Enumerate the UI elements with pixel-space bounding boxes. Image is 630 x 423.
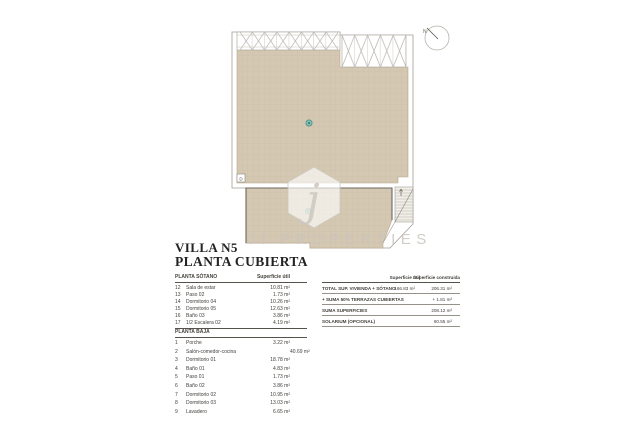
- table-row: 16 Baño 03 3.86 m²: [175, 314, 307, 319]
- row-number: 2: [175, 350, 186, 355]
- row-number: 14: [175, 300, 186, 305]
- table-row: 4 Baño 01 4.83 m²: [175, 367, 307, 372]
- summary-label: SOLARIUM (OPCIONAL): [322, 319, 375, 324]
- table-row: 13 Paso 02 1.73 m²: [175, 293, 307, 298]
- room-name: Dormitorio 04: [186, 300, 250, 305]
- row-number: 7: [175, 393, 186, 398]
- room-area-util: 4.83 m²: [250, 367, 290, 372]
- table-row: 7 Dormitorio 02 10.95 m²: [175, 393, 307, 398]
- table-row: 12 Sala de estar 10.81 m²: [175, 286, 307, 291]
- table-row: 15 Dormitorio 05 12.63 m²: [175, 307, 307, 312]
- table-row: 6 Baño 02 3.86 m²: [175, 384, 307, 389]
- detail-marker: D: [237, 174, 245, 182]
- surface-summary-table: Superficie útil Superficie construida TO…: [322, 272, 460, 327]
- room-name: Paso 02: [186, 293, 250, 298]
- main-terrace: [237, 50, 408, 183]
- summary-rows: TOTAL SUP. VIVIENDA + SÓTANO 166.83 m² 2…: [322, 283, 460, 327]
- row-number: 13: [175, 293, 186, 298]
- row-number: 16: [175, 314, 186, 319]
- compass-north-label: N: [423, 29, 427, 35]
- table-row: 14 Dormitorio 04 10.26 m²: [175, 300, 307, 305]
- summary-label: SUMA SUPERFICIES: [322, 308, 367, 313]
- room-name: Lavadero: [186, 410, 250, 415]
- room-area-util: 18.78 m²: [250, 358, 290, 363]
- room-name: Baño 01: [186, 367, 250, 372]
- row-number: 15: [175, 307, 186, 312]
- room-name: Salón-comedor-cocina: [186, 350, 250, 355]
- baja-rows: 1 Porche 3.22 m² 2 Salón-comedor-cocina …: [175, 341, 307, 415]
- summary-row: SUMA SUPERFICIES 208.12 m²: [322, 305, 460, 316]
- room-name: Dormitorio 05: [186, 307, 250, 312]
- summary-value-construida: 60.55 m²: [434, 319, 452, 324]
- plan-sheet-page: D j JI PROPERTIES N VILLA N5 PLANTA CUBI…: [0, 0, 630, 423]
- page-title: VILLA N5: [175, 241, 308, 254]
- room-area-util: 3.86 m²: [250, 384, 290, 389]
- floor-plan-drawing: D j JI PROPERTIES N: [0, 0, 630, 262]
- summary-value-util: 166.83 m²: [394, 286, 415, 291]
- row-number: 1: [175, 341, 186, 346]
- summary-header-construida: Superficie construida: [413, 275, 460, 280]
- summary-label: + SUMA 50% TERRAZAS CUBIERTAS: [322, 297, 404, 302]
- row-number: 9: [175, 410, 186, 415]
- summary-header-row: Superficie útil Superficie construida: [322, 272, 460, 283]
- summary-value-construida: + 1.81 m²: [432, 297, 452, 302]
- room-name: Baño 02: [186, 384, 250, 389]
- room-area-util: 13.03 m²: [250, 401, 290, 406]
- row-number: 3: [175, 358, 186, 363]
- room-area-util: 10.81 m²: [250, 286, 290, 291]
- summary-row: + SUMA 50% TERRAZAS CUBIERTAS + 1.81 m²: [322, 294, 460, 305]
- table-row: 1 Porche 3.22 m²: [175, 341, 307, 346]
- room-name: Porche: [186, 341, 250, 346]
- summary-row: TOTAL SUP. VIVIENDA + SÓTANO 166.83 m² 2…: [322, 283, 460, 294]
- room-name: Dormitorio 02: [186, 393, 250, 398]
- room-area-util: 12.63 m²: [250, 307, 290, 312]
- room-area-util: 6.65 m²: [250, 410, 290, 415]
- table-row: 2 Salón-comedor-cocina 40.69 m²: [175, 350, 307, 355]
- sotano-header-right: Superficie útil: [257, 275, 290, 280]
- row-number: 12: [175, 286, 186, 291]
- sotano-section-header: PLANTA SÓTANO Superficie útil: [175, 275, 307, 283]
- row-number: 5: [175, 375, 186, 380]
- table-row: 9 Lavadero 6.65 m²: [175, 410, 307, 415]
- row-number: 17: [175, 321, 186, 326]
- title-block: VILLA N5 PLANTA CUBIERTA: [175, 241, 308, 269]
- baja-section-header: PLANTA BAJA: [175, 328, 307, 338]
- room-name: Dormitorio 01: [186, 358, 250, 363]
- table-row: 5 Paso 01 1.73 m²: [175, 375, 307, 380]
- room-name: Sala de estar: [186, 286, 250, 291]
- room-area-util: 3.22 m²: [250, 341, 290, 346]
- table-row: 17 1/2 Escalera 02 4.19 m²: [175, 321, 307, 326]
- page-subtitle: PLANTA CUBIERTA: [175, 255, 308, 269]
- row-number: 4: [175, 367, 186, 372]
- summary-value-construida: 208.12 m²: [431, 308, 452, 313]
- room-name: Dormitorio 03: [186, 401, 250, 406]
- pergola-strip: [237, 32, 340, 50]
- room-area-util: 4.19 m²: [250, 321, 290, 326]
- summary-row: SOLARIUM (OPCIONAL) 60.55 m²: [322, 316, 460, 327]
- table-row: 3 Dormitorio 01 18.78 m²: [175, 358, 307, 363]
- summary-label: TOTAL SUP. VIVIENDA + SÓTANO: [322, 286, 396, 291]
- row-number: 8: [175, 401, 186, 406]
- room-area-util: 1.73 m²: [250, 375, 290, 380]
- row-number: 6: [175, 384, 186, 389]
- room-name: Baño 03: [186, 314, 250, 319]
- room-name: Paso 01: [186, 375, 250, 380]
- table-row: 8 Dormitorio 03 13.03 m²: [175, 401, 307, 406]
- sotano-rows: 12 Sala de estar 10.81 m² 13 Paso 02 1.7…: [175, 286, 307, 326]
- room-area-util: 1.73 m²: [250, 293, 290, 298]
- room-name: 1/2 Escalera 02: [186, 321, 250, 326]
- room-area-util: 3.86 m²: [250, 314, 290, 319]
- room-areas-table: PLANTA SÓTANO Superficie útil 12 Sala de…: [175, 275, 307, 418]
- room-area-util: 10.26 m²: [250, 300, 290, 305]
- summary-value-construida: 206.31 m²: [431, 286, 452, 291]
- sotano-header-label: PLANTA SÓTANO: [175, 275, 217, 280]
- room-area-extra: 40.69 m²: [290, 350, 307, 355]
- room-area-util: 10.95 m²: [250, 393, 290, 398]
- drain-marker-upper: [306, 120, 312, 126]
- pergola-block: [342, 35, 406, 67]
- compass-icon: N: [423, 26, 449, 50]
